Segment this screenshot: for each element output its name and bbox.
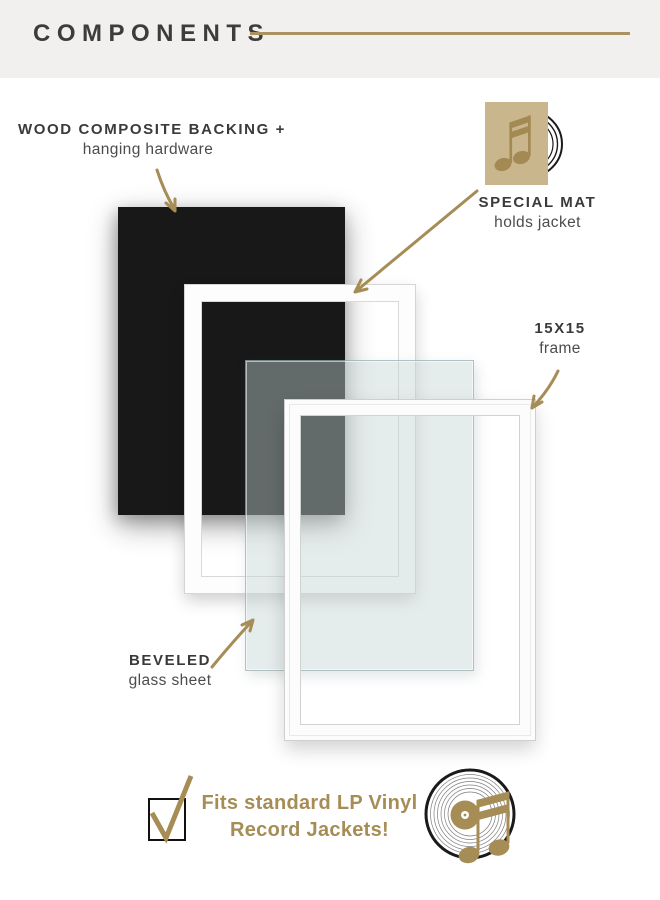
callout-mat: SPECIAL MAT holds jacket <box>455 194 620 232</box>
frame-arrow <box>532 371 558 408</box>
callout-glass-subtitle: glass sheet <box>95 672 245 690</box>
callout-backing-subtitle: hanging hardware <box>18 141 278 159</box>
vinyl-record-music-note-icon <box>420 762 522 872</box>
callout-backing: WOOD COMPOSITE BACKING + hanging hardwar… <box>18 121 278 159</box>
header-band: COMPONENTS <box>0 0 660 78</box>
backing-arrow <box>157 170 175 211</box>
components-infographic: COMPONENTS WOOD COMPOSITE BAC <box>0 0 660 900</box>
callout-glass: BEVELED glass sheet <box>95 652 245 690</box>
callout-glass-title: BEVELED <box>95 652 245 669</box>
header-divider-line <box>250 32 630 35</box>
footer-claim: Fits standard LP Vinyl Record Jackets! <box>182 790 437 844</box>
callout-mat-subtitle: holds jacket <box>455 214 620 232</box>
frame-panel <box>285 400 535 740</box>
page-title: COMPONENTS <box>33 20 270 48</box>
callout-frame: 15X15 frame <box>505 320 615 358</box>
callout-frame-subtitle: frame <box>505 340 615 358</box>
callout-frame-title: 15X15 <box>505 320 615 337</box>
record-jacket-music-note-icon <box>483 101 563 189</box>
footer-claim-line2: Record Jackets! <box>182 817 437 844</box>
checkmark-icon <box>140 765 210 855</box>
callout-backing-title: WOOD COMPOSITE BACKING + <box>18 121 278 138</box>
frame-molding-line <box>289 404 531 736</box>
callout-mat-title: SPECIAL MAT <box>455 194 620 211</box>
footer-claim-line1: Fits standard LP Vinyl <box>182 790 437 817</box>
